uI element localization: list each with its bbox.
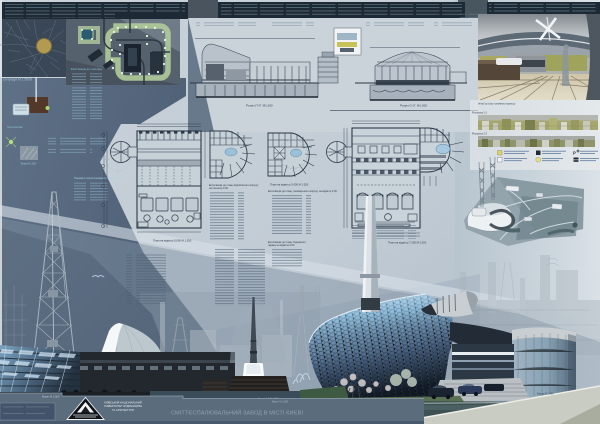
svg-text:Експлiкацiя до генплану: Експлiкацiя до генплану [71,67,103,71]
svg-text:КИЇВСЬКИЙ НАЦIОНАЛЬНИЙ: КИЇВСЬКИЙ НАЦIОНАЛЬНИЙ [104,401,142,405]
svg-text:Розрiз П-П` М1:200: Розрiз П-П` М1:200 [246,104,273,108]
svg-text:ТА АРХIТЕКТУРИ: ТА АРХIТЕКТУРИ [112,408,134,412]
svg-text:План на вiдмiтцi 0.000 М 1:200: План на вiдмiтцi 0.000 М 1:200 [153,239,192,243]
svg-text:УНIВЕРСИТЕТ БУДIВНИЦТВА: УНIВЕРСИТЕТ БУДIВНИЦТВА [104,404,142,408]
svg-text:Ситуацiя М 1:5000: Ситуацiя М 1:5000 [3,78,32,82]
svg-text:Розгортка 2-2: Розгортка 2-2 [472,133,488,136]
svg-text:Розрiз О-О` М1:200: Розрiз О-О` М1:200 [400,104,427,108]
svg-text:Макет М 1:500: Макет М 1:500 [42,395,60,399]
svg-text:Вежа М 1:500: Вежа М 1:500 [21,163,37,166]
svg-text:Експлiкацiя до плану громадськ: Експлiкацiя до плану громадського корпус… [268,190,337,193]
svg-text:Iнтер`єр холу головного корпус: Iнтер`єр холу головного корпусу [478,103,516,106]
svg-text:СМIТТЄСПАЛЮВАЛЬНИЙ ЗАВОД В МIС: СМIТТЄСПАЛЮВАЛЬНИЙ ЗАВОД В МIСТI КИЄВI [171,409,303,417]
svg-text:Переваги запропонованого рiшен: Переваги запропонованого рiшення [74,176,118,180]
svg-text:Розгортка 1-1: Розгортка 1-1 [472,112,488,115]
svg-text:на позначцi 0.00: на позначцi 0.00 [209,187,229,190]
svg-text:Фасад М 1:400: Фасад М 1:400 [537,393,554,396]
svg-text:План на вiдмiтцi 0.000 М 1:200: План на вiдмiтцi 0.000 М 1:200 [270,183,309,187]
svg-text:P: P [573,151,576,156]
svg-text:Макет М 1:500: Макет М 1:500 [272,401,289,404]
svg-text:гаражу на вiдмiтцi 6.00: гаражу на вiдмiтцi 6.00 [268,244,295,247]
svg-text:План на вiдмiтцi 7.200 М 1:200: План на вiдмiтцi 7.200 М 1:200 [388,241,427,245]
svg-text:Перспектива: Перспектива [7,125,23,129]
